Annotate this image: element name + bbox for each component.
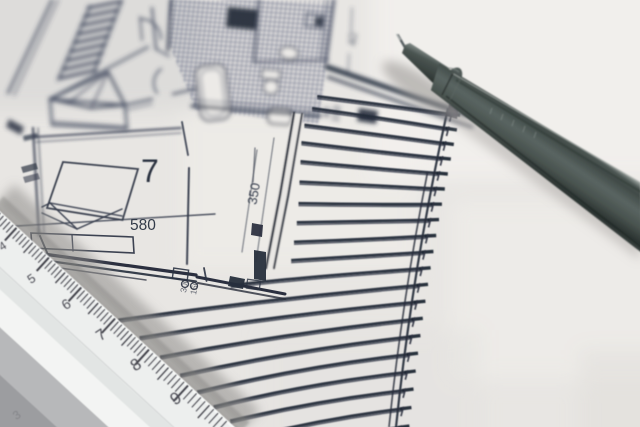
svg-text:580: 580 — [130, 217, 156, 234]
svg-text:40: 40 — [345, 32, 360, 47]
svg-text:7: 7 — [141, 153, 159, 189]
